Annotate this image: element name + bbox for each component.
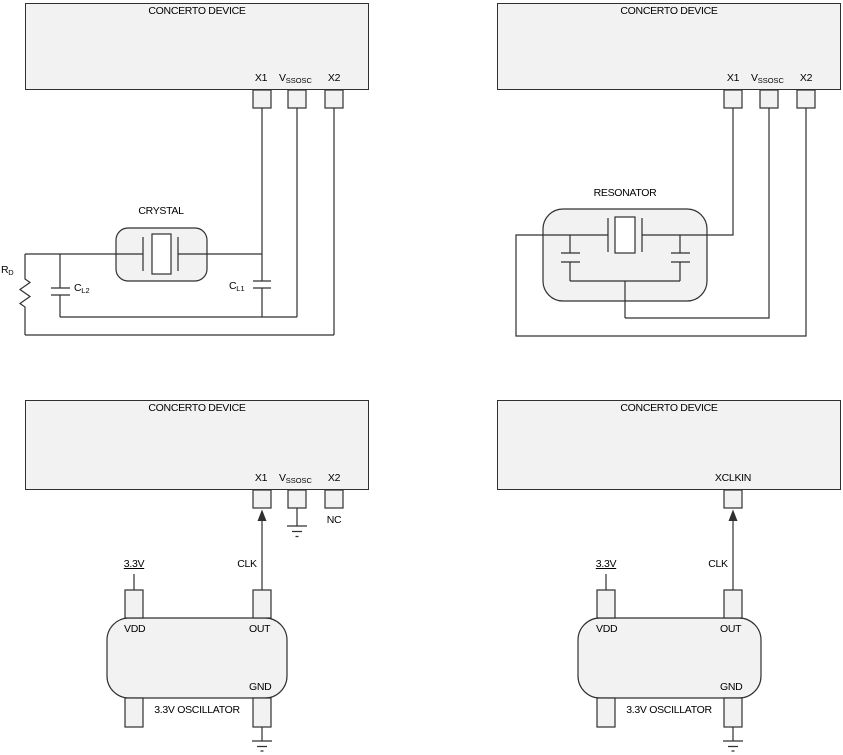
vssosc-main: V [279, 72, 286, 84]
osc-vdd-label: VDD [124, 623, 145, 636]
resonator-circuit-graphics [516, 90, 815, 336]
pin-vssosc [760, 90, 778, 108]
pin-label-x1: X1 [245, 472, 277, 485]
osc-pin-vdd [125, 590, 143, 618]
pin-label-x1: X1 [717, 72, 749, 85]
crystal-element [152, 234, 171, 274]
rd-sub: D [8, 268, 13, 277]
cl2-capacitor [51, 254, 70, 317]
oscillator-title: 3.3V OSCILLATOR [147, 704, 247, 717]
wiring-layer [0, 0, 843, 755]
pin-label-x2: X2 [318, 72, 350, 85]
crystal-label: CRYSTAL [121, 205, 201, 218]
pin-label-vssosc: VSSOSC [751, 72, 784, 87]
osc-out-label: OUT [720, 623, 741, 636]
vssosc-sub: SSOSC [286, 476, 312, 485]
osc-pin-gnd [253, 698, 271, 727]
nc-label: NC [318, 514, 350, 527]
osc-out-label: OUT [249, 623, 270, 636]
pin-vssosc [288, 90, 306, 108]
osc-vdd-label: VDD [596, 623, 617, 636]
osc-gnd-label: GND [720, 681, 742, 694]
rd-label: RD [1, 264, 14, 279]
clk-label: CLK [702, 558, 734, 571]
pin-label-x2: X2 [318, 472, 350, 485]
osc-pin-nc [597, 698, 615, 727]
osc-pin-out [253, 590, 271, 618]
rd-resistor [20, 254, 30, 335]
pin-x2 [797, 90, 815, 108]
resonator-label: RESONATOR [575, 187, 675, 200]
vssosc-main: V [751, 72, 758, 84]
pin-label-vssosc: VSSOSC [279, 472, 312, 487]
osc-pin-nc [125, 698, 143, 727]
vssosc-main: V [279, 472, 286, 484]
device-title: CONCERTO DEVICE [497, 5, 841, 18]
cl2-sub: L2 [81, 286, 89, 295]
oscillator-ground-symbol [723, 727, 743, 751]
oscillator-title: 3.3V OSCILLATOR [619, 704, 719, 717]
cl1-capacitor [253, 281, 271, 317]
vssosc-sub: SSOSC [758, 76, 784, 85]
vssosc-ground-symbol [287, 508, 307, 537]
pin-label-vssosc: VSSOSC [279, 72, 312, 87]
clk-label: CLK [231, 558, 263, 571]
pin-x2 [325, 490, 343, 508]
vssosc-sub: SSOSC [286, 76, 312, 85]
device-title: CONCERTO DEVICE [25, 5, 369, 18]
pin-label-x1: X1 [245, 72, 277, 85]
supply-3v3-label: 3.3V [114, 558, 154, 571]
supply-3v3-label: 3.3V [586, 558, 626, 571]
pin-xclkin [724, 490, 742, 508]
pin-x2 [325, 90, 343, 108]
cl1-sub: L1 [236, 284, 244, 293]
oscillator-ground-symbol [252, 727, 272, 751]
clk-arrowhead [258, 510, 267, 522]
pin-vssosc [288, 490, 306, 508]
device-title: CONCERTO DEVICE [25, 402, 369, 415]
osc-pin-vdd [597, 590, 615, 618]
cl1-label: CL1 [229, 280, 245, 295]
pin-x1 [253, 90, 271, 108]
device-title: CONCERTO DEVICE [497, 402, 841, 415]
clk-arrowhead [729, 510, 738, 522]
osc-pin-out [724, 590, 742, 618]
pin-x1 [724, 90, 742, 108]
oscillator-connection-diagrams: CONCERTO DEVICE X1 VSSOSC X2 CRYSTAL RD … [0, 0, 843, 755]
resonator-crystal-element [615, 217, 635, 253]
osc-gnd-label: GND [249, 681, 271, 694]
pin-x1 [253, 490, 271, 508]
pin-label-xclkin: XCLKIN [703, 472, 763, 485]
pin-label-x2: X2 [790, 72, 822, 85]
osc-pin-gnd [724, 698, 742, 727]
cl2-label: CL2 [74, 282, 90, 297]
